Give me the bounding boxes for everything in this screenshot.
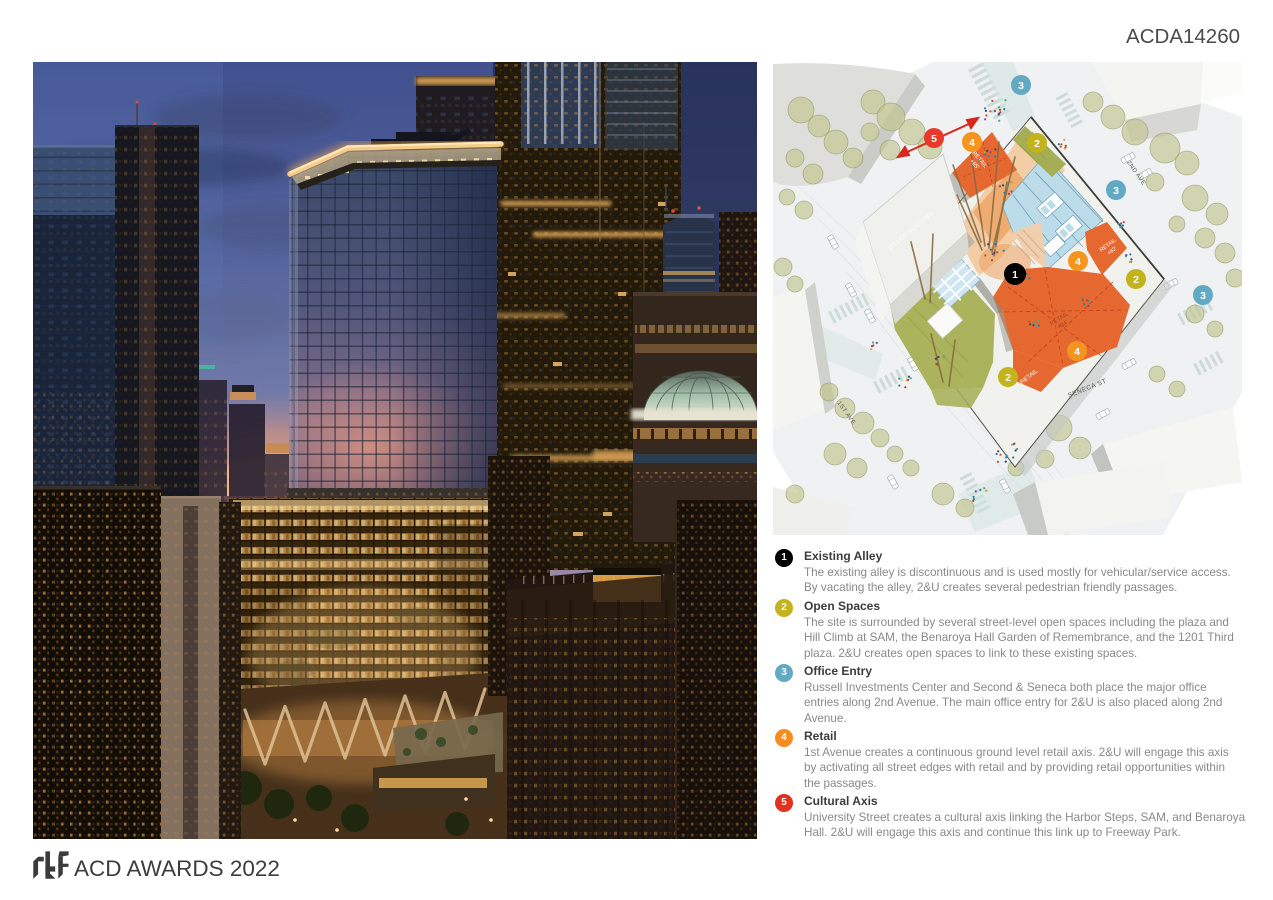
svg-text:4: 4 <box>1075 256 1081 268</box>
svg-text:3: 3 <box>1113 185 1119 197</box>
svg-text:2: 2 <box>1034 138 1040 150</box>
svg-text:3: 3 <box>1018 80 1024 92</box>
svg-text:3: 3 <box>1200 290 1206 302</box>
svg-text:2: 2 <box>1133 274 1139 286</box>
svg-text:4: 4 <box>969 137 975 149</box>
svg-text:5: 5 <box>931 133 937 145</box>
svg-text:1: 1 <box>1012 269 1018 281</box>
svg-text:2: 2 <box>1005 372 1011 384</box>
svg-text:4: 4 <box>1074 346 1080 358</box>
